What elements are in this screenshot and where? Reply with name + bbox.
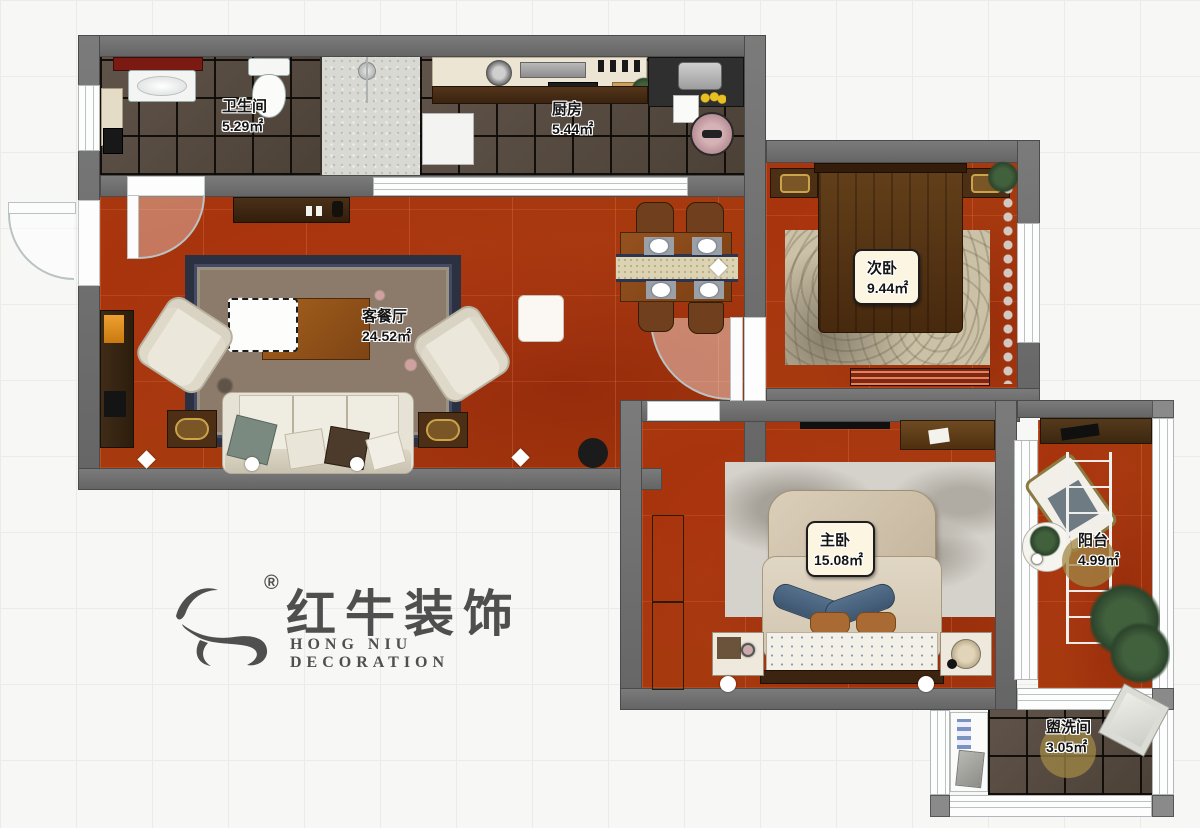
kitchen-lower-cabinet xyxy=(432,86,648,104)
master-nightstand-right xyxy=(940,632,992,676)
window-bathroom-left xyxy=(78,85,100,151)
kitchen-pot xyxy=(486,60,512,86)
bedroom2-door-gap xyxy=(744,317,766,401)
room-label-washroom: 盥洗间 3.05㎡ xyxy=(1046,717,1091,758)
dresser xyxy=(900,420,995,450)
registered-mark: ® xyxy=(264,572,279,595)
downlight xyxy=(245,457,259,471)
tv-bar xyxy=(800,422,890,429)
washing-machine xyxy=(690,112,734,156)
plate xyxy=(698,239,716,253)
bull-icon xyxy=(168,580,276,672)
room-name: 卫生间 xyxy=(222,96,267,117)
range-hood xyxy=(520,62,586,78)
side-table-left xyxy=(167,410,217,448)
pillow-tan xyxy=(810,612,850,634)
bathroom-appliance xyxy=(103,128,123,154)
wall-top xyxy=(78,35,766,57)
downlight xyxy=(918,676,934,692)
plate xyxy=(650,239,668,253)
kitchen-sink xyxy=(678,62,722,90)
room-area: 3.05㎡ xyxy=(1046,738,1091,758)
dining-chair xyxy=(686,202,724,234)
towel-gray xyxy=(955,750,985,789)
tray xyxy=(780,174,810,193)
shower-pipe xyxy=(366,57,368,103)
table-tray-white xyxy=(228,298,298,352)
window-washroom-left xyxy=(930,710,950,795)
window-bedroom2-right xyxy=(1017,223,1040,343)
bedroom2-curtain xyxy=(1002,168,1014,384)
balcony-shelf xyxy=(1040,418,1152,444)
dining-chair xyxy=(688,302,724,334)
bathroom-sink xyxy=(128,70,196,102)
dining-chair xyxy=(638,300,674,332)
master-door-gap xyxy=(647,401,720,421)
plate xyxy=(652,283,670,297)
pillow-cream xyxy=(284,428,327,470)
downlight xyxy=(350,457,364,471)
stereo xyxy=(104,391,126,417)
wall-balcony-top xyxy=(1017,400,1174,418)
mat xyxy=(1060,423,1099,440)
room-label-kitchen: 厨房 5.44㎡ xyxy=(552,99,593,140)
downlight xyxy=(720,676,736,692)
balcony-plant xyxy=(1110,620,1170,686)
room-label-master: 主卧 15.08㎡ xyxy=(806,521,875,577)
lemons xyxy=(700,92,726,104)
wardrobe xyxy=(652,515,684,690)
room-name: 次卧 xyxy=(867,258,908,279)
sink-basin xyxy=(137,76,187,96)
bedroom2-plant xyxy=(988,160,1018,194)
console-table xyxy=(233,197,350,223)
tray xyxy=(426,419,460,441)
fridge xyxy=(422,113,474,165)
pillow-tan xyxy=(856,612,896,634)
lamp-shade xyxy=(741,643,755,657)
table-plant xyxy=(1029,525,1061,557)
vase xyxy=(332,201,343,217)
candles xyxy=(306,206,326,216)
blue-deco xyxy=(957,719,971,749)
brand-name-en: HONG NIU DECORATION xyxy=(290,636,528,672)
floorplan-canvas: 卫生间 5.29㎡ 厨房 5.44㎡ 客餐厅 24.52㎡ 次卧 9.44㎡ 主… xyxy=(0,0,1200,828)
room-label-balcony: 阳台 4.99㎡ xyxy=(1078,530,1119,571)
room-label-bedroom2: 次卧 9.44㎡ xyxy=(853,249,920,305)
room-name: 厨房 xyxy=(552,99,593,120)
master-mattress-foot xyxy=(766,632,938,674)
room-area: 5.29㎡ xyxy=(222,117,267,137)
bathroom-door-leaf xyxy=(127,195,139,259)
frame-corner xyxy=(930,795,950,817)
plate xyxy=(700,283,718,297)
cup xyxy=(1031,553,1043,565)
room-area: 9.44㎡ xyxy=(867,279,908,299)
bathroom-door-gap xyxy=(127,176,205,196)
master-nightstand-left xyxy=(712,632,764,676)
frame-corner xyxy=(1152,400,1174,418)
brand-logo: ® 红牛装饰 HONG NIU DECORATION xyxy=(168,576,528,671)
bedroom2-door-leaf xyxy=(730,317,743,401)
lamp xyxy=(717,637,741,659)
lamp-dot xyxy=(947,659,957,669)
window-kitchen-living xyxy=(373,177,688,196)
room-area: 5.44㎡ xyxy=(552,120,593,140)
laundry-counter xyxy=(950,712,988,792)
room-label-living: 客餐厅 24.52㎡ xyxy=(362,306,411,347)
wall-master-left xyxy=(620,400,642,710)
washer-door xyxy=(702,130,722,138)
tv-cabinet xyxy=(100,310,134,448)
room-name: 主卧 xyxy=(820,530,863,551)
bedroom2-headboard xyxy=(814,163,967,173)
paper xyxy=(928,428,950,445)
bedroom2-radiator xyxy=(850,368,990,386)
room-label-bathroom: 卫生间 5.29㎡ xyxy=(222,96,267,137)
floor-cushion-white xyxy=(518,295,564,342)
room-name: 阳台 xyxy=(1078,530,1119,551)
tray xyxy=(175,418,209,440)
entry-door-gap xyxy=(78,200,100,286)
utensil-rail xyxy=(598,60,646,72)
dining-chair xyxy=(636,202,674,234)
room-area: 24.52㎡ xyxy=(362,327,411,347)
room-area: 4.99㎡ xyxy=(1078,551,1119,571)
ottoman xyxy=(578,438,608,468)
window-washroom-bottom xyxy=(930,795,1152,817)
entry-door-leaf xyxy=(8,202,76,214)
wall-master-bottom xyxy=(620,688,1020,710)
room-area: 15.08㎡ xyxy=(814,551,863,571)
tv-screen xyxy=(104,315,124,343)
entry-door-swing xyxy=(8,214,74,280)
frame-corner xyxy=(1152,795,1174,817)
bathroom-counter xyxy=(113,57,203,71)
bedroom2-nightstand-left xyxy=(770,168,818,198)
room-name: 盥洗间 xyxy=(1046,717,1091,738)
side-table-right xyxy=(418,412,468,448)
room-name: 客餐厅 xyxy=(362,306,411,327)
master-headboard xyxy=(760,670,944,684)
